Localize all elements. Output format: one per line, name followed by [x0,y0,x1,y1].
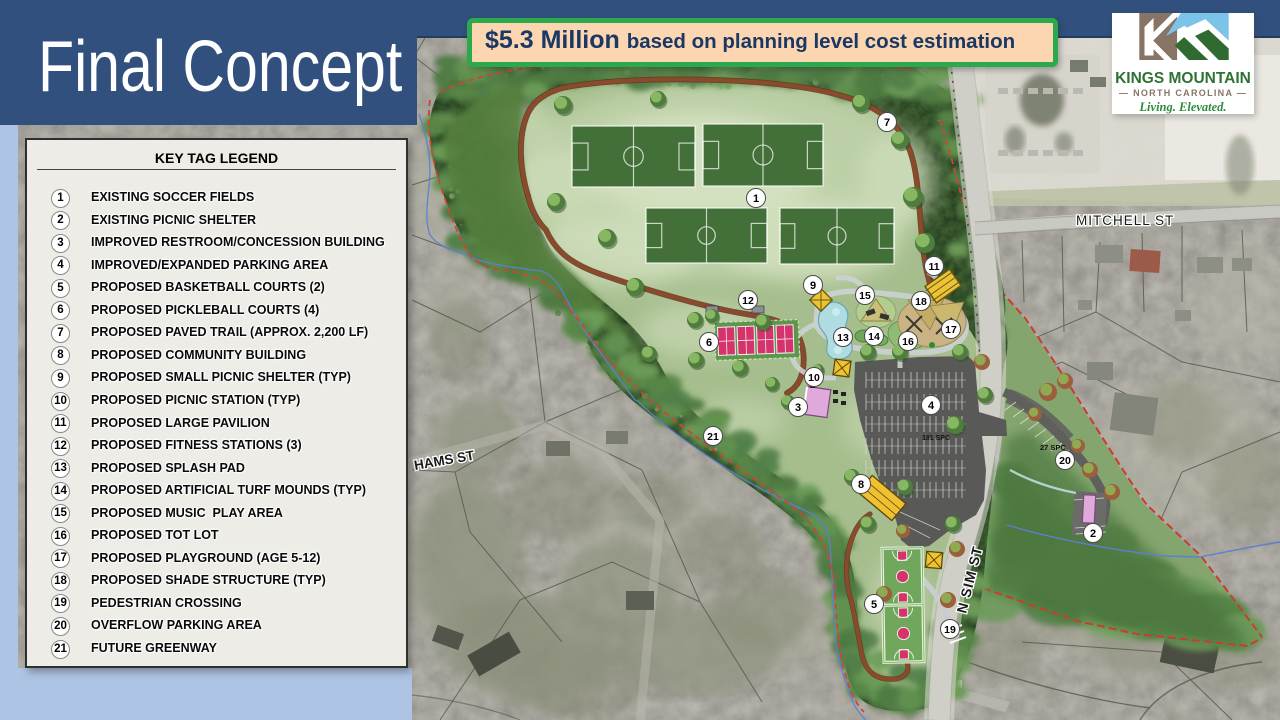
svg-text:8: 8 [858,479,864,491]
svg-text:2: 2 [1090,528,1096,540]
svg-text:4: 4 [928,400,935,412]
svg-text:10: 10 [808,372,820,384]
svg-text:11: 11 [928,261,939,273]
svg-text:9: 9 [810,280,816,292]
svg-text:21: 21 [707,431,719,443]
svg-text:12: 12 [742,295,754,307]
svg-text:19: 19 [944,624,956,636]
svg-text:5: 5 [871,599,877,611]
svg-text:6: 6 [706,337,712,349]
svg-text:17: 17 [945,324,957,336]
svg-text:15: 15 [859,290,871,302]
svg-text:20: 20 [1059,455,1071,467]
svg-text:181 SPC: 181 SPC [922,435,950,442]
svg-text:14: 14 [868,331,880,343]
svg-text:13: 13 [837,332,849,344]
svg-text:1: 1 [753,193,759,205]
svg-text:3: 3 [795,402,801,414]
svg-text:16: 16 [902,336,914,348]
svg-text:7: 7 [884,117,890,129]
svg-text:18: 18 [915,296,927,308]
svg-text:MITCHELL ST: MITCHELL ST [1076,213,1174,228]
